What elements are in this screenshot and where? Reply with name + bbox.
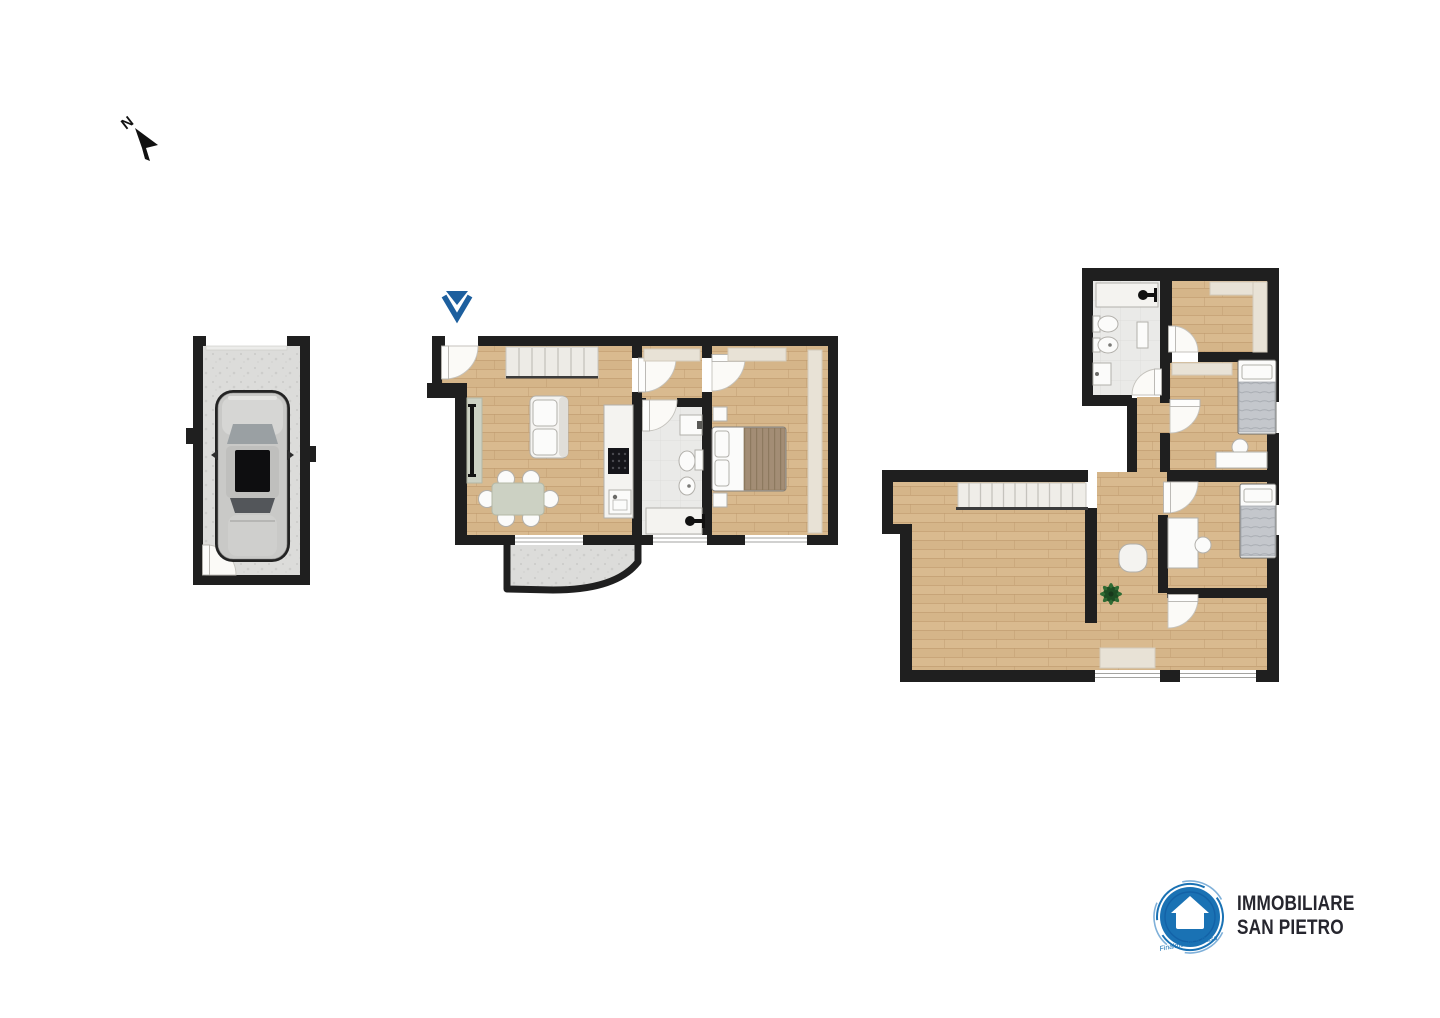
north-label: N — [118, 113, 137, 133]
desk-bedroom3 — [1168, 518, 1198, 568]
brand-name-line2: SAN PIETRO — [1237, 917, 1344, 940]
hallway-wardrobe — [644, 349, 700, 361]
desk-bedroom2 — [1216, 452, 1267, 468]
kitchen-counter — [604, 405, 633, 518]
tv-sideboard — [467, 398, 482, 483]
upper-bath-cabinet — [1137, 322, 1148, 348]
upper-floor-plan — [882, 268, 1279, 682]
upper-living-floor — [893, 482, 1085, 670]
garage-door-panel — [206, 346, 287, 350]
north-arrow-icon — [135, 128, 158, 161]
nightstand-bottom — [713, 493, 727, 507]
staircase-ground — [506, 347, 598, 379]
upper-bottom-window2 — [1180, 670, 1256, 682]
plant — [1100, 583, 1122, 605]
dining-table — [492, 483, 544, 515]
living-terrace-window — [515, 535, 583, 545]
entrance-marker-icon — [444, 291, 470, 318]
bedroom-wardrobe-right — [808, 350, 822, 533]
bathroom-window — [653, 535, 707, 545]
ground-floor-plan — [427, 291, 838, 590]
floorplan-page: N — [0, 0, 1440, 1018]
car-top-view — [211, 390, 294, 562]
brand-logo: IMMOBILIARE SAN PIETRO Finalmente a Casa — [1139, 866, 1354, 967]
garage-door-opening — [206, 336, 287, 346]
desk-chair-bedroom3 — [1195, 537, 1211, 553]
nightstand-top — [713, 407, 727, 421]
entrance-opening — [445, 336, 478, 346]
pouf — [1119, 544, 1147, 572]
garage-plan — [186, 336, 316, 585]
terrace-floor — [507, 545, 638, 590]
garage-pilaster-right — [308, 446, 316, 462]
double-bed — [712, 427, 786, 491]
brand-logo-icon — [1139, 866, 1240, 967]
garage-side-door-leaf — [203, 545, 210, 575]
entrance-door-leaf — [442, 346, 449, 379]
staircase-upper — [956, 483, 1088, 510]
garage-pilaster-left — [186, 428, 194, 444]
car-sunroof — [235, 450, 270, 492]
upper-room1-wardrobe-right — [1253, 282, 1267, 352]
sofa — [530, 396, 568, 458]
upper-bottom-window1 — [1095, 670, 1160, 682]
upper-landing-floor — [1097, 472, 1168, 598]
floorplan-canvas: N — [0, 0, 1440, 1018]
upper-bedroom2-wardrobe — [1172, 363, 1232, 375]
north-compass: N — [118, 113, 158, 161]
corridor-closet — [1100, 648, 1155, 668]
bedroom-window — [745, 535, 807, 545]
bedroom-wardrobe-top — [728, 348, 786, 361]
brand-name-line1: IMMOBILIARE — [1237, 893, 1354, 916]
